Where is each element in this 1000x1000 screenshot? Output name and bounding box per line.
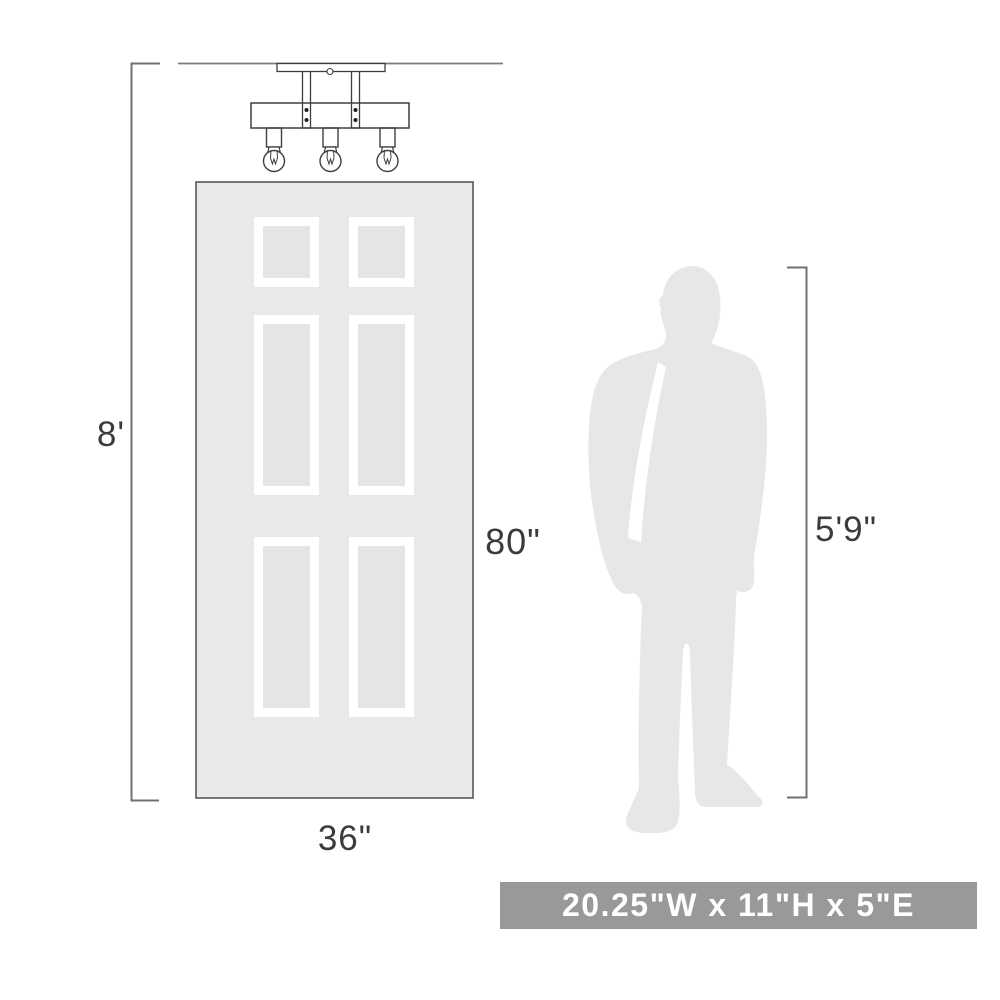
diagram-artwork — [0, 0, 1000, 1000]
fixture-crossbar — [251, 103, 409, 128]
door-width-label: 36" — [318, 819, 372, 859]
door-panel — [349, 537, 414, 717]
screw-dot — [305, 108, 309, 112]
ceiling-fixture — [251, 64, 409, 172]
light-bulb-icon — [320, 128, 341, 172]
door-panel — [254, 217, 319, 287]
light-bulb-icon — [377, 128, 398, 172]
canopy-screw — [327, 69, 333, 75]
light-bulb-icon — [264, 128, 285, 172]
door — [196, 182, 473, 798]
door-height-label: 80" — [485, 521, 541, 563]
screw-dot — [305, 118, 309, 122]
product-dimensions-text: 20.25"W x 11"H x 5"E — [562, 887, 915, 924]
screw-dot — [354, 118, 358, 122]
door-panel — [254, 537, 319, 717]
door-panel — [254, 315, 319, 495]
ceiling-height-dimension-line — [132, 64, 161, 801]
person-silhouette — [588, 266, 767, 833]
door-panel — [349, 315, 414, 495]
dimension-diagram: 8' 80" 36" 5'9" 20.25"W x 11"H x 5"E — [0, 0, 1000, 1000]
door-slab — [196, 182, 473, 798]
screw-dot — [354, 108, 358, 112]
person-height-label: 5'9" — [815, 510, 877, 550]
door-panel — [349, 217, 414, 287]
ceiling-height-label: 8' — [97, 415, 125, 455]
person-height-dimension-line — [787, 268, 807, 798]
product-dimensions-banner: 20.25"W x 11"H x 5"E — [500, 882, 977, 929]
